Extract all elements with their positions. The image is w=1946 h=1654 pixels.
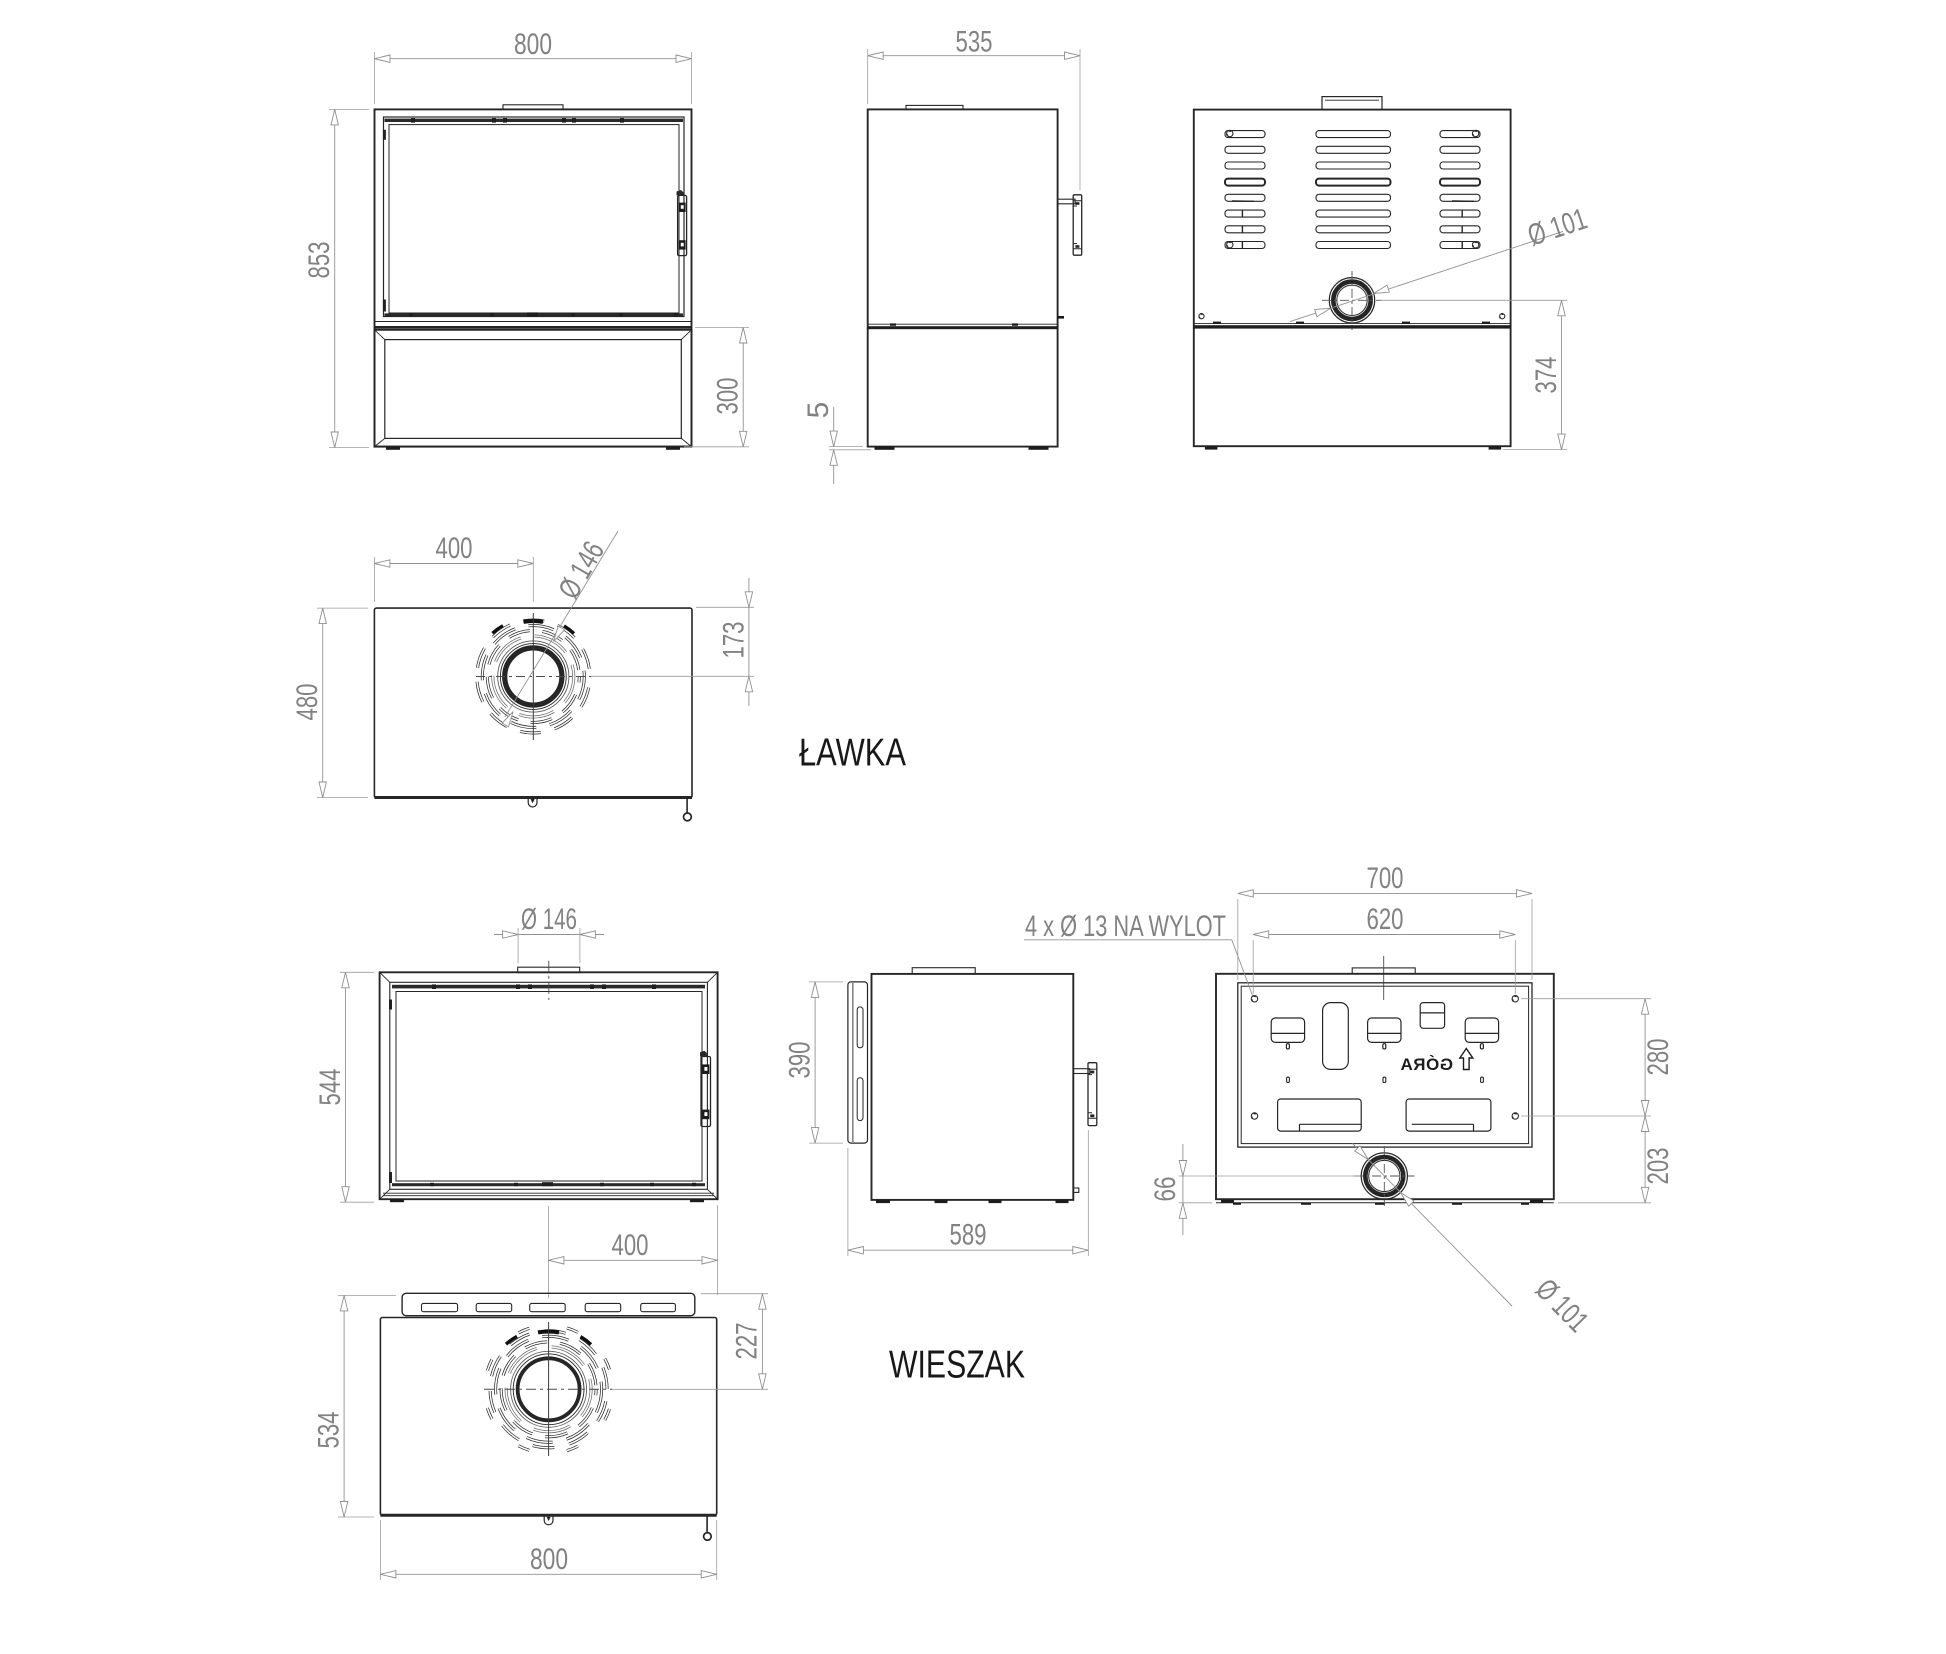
svg-text:400: 400 — [436, 532, 473, 565]
svg-text:535: 535 — [956, 25, 993, 58]
svg-text:800: 800 — [514, 28, 552, 61]
svg-text:Ø 146: Ø 146 — [521, 903, 577, 936]
svg-text:5: 5 — [802, 402, 835, 419]
svg-text:700: 700 — [1367, 862, 1404, 895]
svg-text:4 x Ø 13 NA WYLOT: 4 x Ø 13 NA WYLOT — [1025, 910, 1226, 943]
svg-text:589: 589 — [950, 1219, 987, 1252]
svg-text:280: 280 — [1642, 1039, 1675, 1076]
svg-text:400: 400 — [612, 1229, 649, 1262]
svg-text:300: 300 — [712, 378, 745, 415]
svg-text:534: 534 — [312, 1412, 345, 1449]
svg-text:173: 173 — [717, 622, 750, 659]
svg-text:66: 66 — [1149, 1177, 1182, 1202]
svg-text:544: 544 — [314, 1069, 347, 1106]
svg-text:390: 390 — [784, 1042, 817, 1079]
svg-text:ŁAWKA: ŁAWKA — [799, 731, 906, 774]
svg-text:227: 227 — [731, 1323, 764, 1360]
svg-text:374: 374 — [1530, 357, 1563, 394]
svg-text:800: 800 — [530, 1543, 568, 1576]
svg-text:853: 853 — [303, 242, 336, 279]
svg-text:WIESZAK: WIESZAK — [889, 1344, 1025, 1387]
svg-text:203: 203 — [1642, 1148, 1675, 1185]
svg-text:620: 620 — [1367, 903, 1404, 936]
svg-text:480: 480 — [291, 684, 324, 721]
svg-text:GÓRA: GÓRA — [1400, 1055, 1453, 1074]
